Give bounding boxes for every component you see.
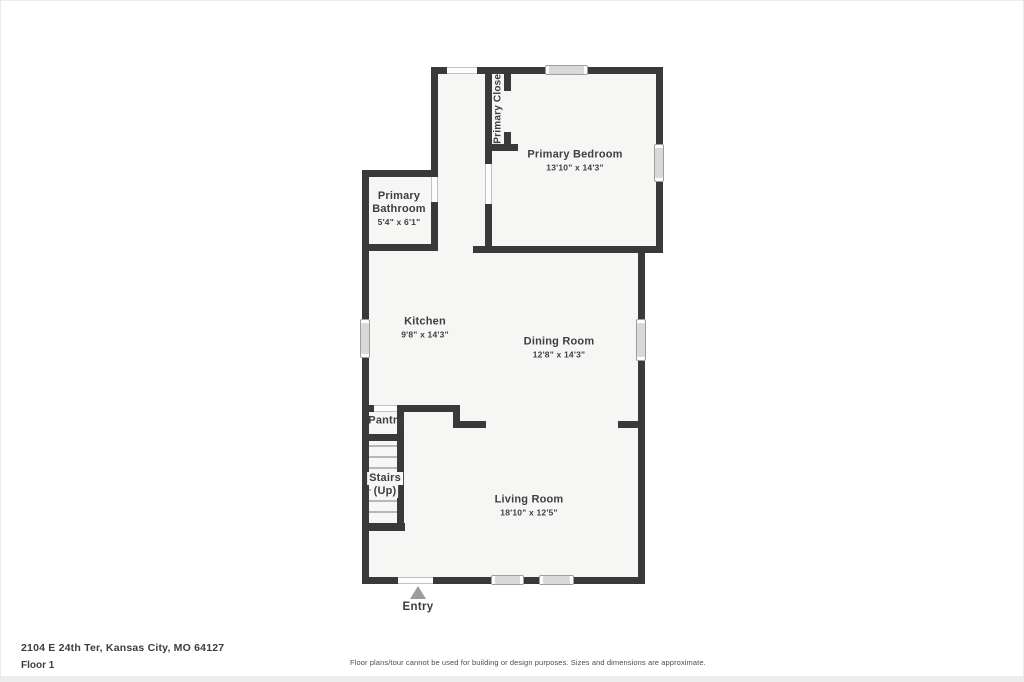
wall	[638, 361, 645, 584]
stair-step	[369, 511, 397, 513]
room-dimensions: 5'4" x 6'1"	[367, 217, 431, 228]
wall	[433, 577, 491, 584]
room-dimensions: 13'10" x 14'3"	[527, 163, 622, 174]
wall	[362, 523, 405, 531]
stairs-direction: (Up)	[372, 485, 399, 498]
room-name: Primary Bathroom	[367, 190, 431, 216]
stair-step	[369, 467, 397, 469]
entry-label: Entry	[403, 601, 434, 613]
wall	[656, 67, 663, 144]
wall	[362, 358, 369, 584]
wall	[618, 421, 645, 428]
room-label-primary-closet: Primary Closet	[492, 70, 505, 143]
room-dimensions: 12'8" x 14'3"	[524, 350, 595, 361]
stair-step	[369, 500, 397, 502]
window	[654, 144, 664, 182]
wall	[524, 577, 539, 584]
wall	[431, 67, 438, 173]
floor-number: Floor 1	[21, 660, 54, 671]
wall	[401, 405, 460, 412]
room-name: Dining Room	[524, 336, 595, 349]
wall	[574, 577, 645, 584]
room-dimensions: 18'10" x 12'5"	[495, 508, 564, 519]
room-label-dining-room: Dining Room 12'8" x 14'3"	[524, 336, 595, 361]
window	[539, 575, 574, 585]
wall	[638, 253, 645, 319]
bottom-edge-strip	[1, 676, 1023, 681]
stair-step	[369, 456, 397, 458]
wall	[362, 244, 438, 251]
window	[360, 319, 370, 358]
wall-opening	[447, 67, 477, 74]
bedroom-door-opening	[485, 164, 492, 204]
wall	[588, 67, 663, 74]
room-name: Stairs	[367, 472, 403, 485]
room-dimensions: 9'8" x 14'3"	[401, 330, 449, 341]
wall	[453, 421, 486, 428]
room-label-primary-bedroom: Primary Bedroom 13'10" x 14'3"	[527, 149, 622, 174]
wall	[362, 170, 438, 177]
room-name: Kitchen	[401, 316, 449, 329]
floor-main-section	[362, 245, 645, 584]
wall	[362, 405, 374, 412]
room-label-stairs: Stairs (Up)	[367, 472, 403, 498]
room-name: Pantry	[368, 415, 403, 428]
room-name: Living Room	[495, 494, 564, 507]
stair-step	[369, 445, 397, 447]
room-label-kitchen: Kitchen 9'8" x 14'3"	[401, 316, 449, 341]
wall	[362, 434, 404, 441]
entry-door-opening	[398, 577, 433, 584]
window	[491, 575, 524, 585]
disclaimer-text: Floor plans/tour cannot be used for buil…	[350, 658, 706, 667]
wall	[492, 144, 518, 151]
wall	[504, 67, 511, 91]
window	[545, 65, 588, 75]
room-label-living-room: Living Room 18'10" x 12'5"	[495, 494, 564, 519]
room-label-pantry: Pantry	[368, 415, 403, 428]
bathroom-door-opening	[431, 177, 438, 202]
room-name: Primary Bedroom	[527, 149, 622, 162]
window	[636, 319, 646, 361]
wall	[656, 182, 663, 253]
room-label-primary-bathroom: Primary Bathroom 5'4" x 6'1"	[367, 190, 431, 228]
floorplan-page: Primary Closet Primary Bedroom 13'10" x …	[0, 0, 1024, 682]
property-address: 2104 E 24th Ter, Kansas City, MO 64127	[21, 642, 224, 654]
entry-arrow-icon	[410, 586, 426, 599]
room-name: Primary Closet	[492, 70, 505, 143]
wall	[362, 577, 398, 584]
wall	[473, 246, 663, 253]
